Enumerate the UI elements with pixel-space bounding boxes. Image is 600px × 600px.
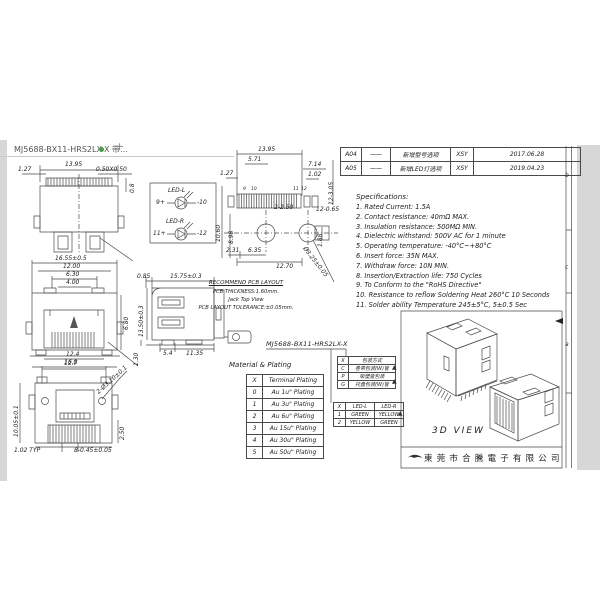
table-row: A05 —— 新增LED灯选项 XSY 2019.04.23 [341, 162, 581, 176]
led-right-cathode: -12 [197, 231, 207, 237]
pin-number: 11 [293, 188, 299, 193]
led-right-label: LED-R [166, 219, 184, 225]
table-row: X LED-L LED-R [334, 403, 404, 411]
cell: 吸塑盒包装 [349, 373, 396, 381]
cell: Au 6u" Plating [263, 411, 324, 423]
cell: 托盘包装(W)管 [349, 381, 396, 389]
cell: 5 [247, 447, 263, 459]
pcb-layout-note: RECOMMEND PCB LAYOUT PCB THICKNESS:1.60m… [194, 280, 298, 312]
rev-by: XSY [451, 162, 474, 176]
pcb-note-line: Jack Top View [194, 296, 298, 304]
cell: 2 [247, 411, 263, 423]
cell: Au 15u" Plating [263, 423, 324, 435]
dim-label: 2-2.50 [274, 205, 293, 211]
dim-label: 7.14 [308, 162, 321, 168]
dim-label: 16.55±0.5 [55, 256, 87, 262]
table-row: G托盘包装(W)管 [338, 381, 396, 389]
table-row: C卷带包装(W)管 [338, 365, 396, 373]
cell: Au 30u" Plating [263, 435, 324, 447]
pin-number: 10 [251, 188, 257, 193]
cell: X [338, 357, 349, 365]
rev-mark: —— [362, 162, 391, 176]
col-header: X [247, 375, 263, 387]
cell: 0 [247, 387, 263, 399]
zone-letter: a [565, 341, 569, 348]
material-plating-table: X Terminal Plating 0Au 1u" Plating 1Au 3… [246, 374, 324, 459]
dim-label: 8-0.45±0.05 [74, 448, 112, 454]
led-left-anode: 9+ [156, 200, 165, 206]
dim-label: 11.35 [186, 351, 203, 357]
cell: 包装方式 [349, 357, 396, 365]
table-row: 1Au 3u" Plating [247, 399, 324, 411]
dim-label: 1.27 [220, 171, 233, 177]
dim-label: 12.70 [276, 264, 293, 270]
cell: 3 [247, 423, 263, 435]
dim-label: 1.30 [134, 353, 140, 366]
rev-desc: 新增LED灯选项 [391, 162, 451, 176]
dim-label: 10.05±0.1 [14, 405, 20, 437]
col-header: LED-L [346, 403, 375, 411]
dim-label: 12.4 [66, 352, 79, 358]
spec-item: 10. Resistance to reflow Soldering Heat … [356, 291, 550, 301]
cell: Au 50u" Plating [263, 447, 324, 459]
spec-item: 9. To Conform to the "RoHS Directive" [356, 281, 550, 291]
rev-id: A05 [341, 162, 362, 176]
table-row: X Terminal Plating [247, 375, 324, 387]
dim-label: 13.95 [65, 162, 82, 168]
cell: 1 [247, 399, 263, 411]
cell: GREEN [346, 411, 375, 419]
threed-view-label: 3D VIEW [432, 426, 485, 436]
revision-table: A04 —— 新增型号选项 XSY 2017.06.28 A05 —— 新增LE… [340, 147, 581, 176]
revision-marker-icon: ▲ [392, 379, 397, 385]
spec-item: 6. Insert force: 35N MAX. [356, 252, 550, 262]
rev-desc: 新增型号选项 [391, 148, 451, 162]
spec-item: 8. Insertion/Extraction life: 750 Cycles [356, 272, 550, 282]
dim-label: 12.7 [64, 361, 77, 367]
packing-table: X包装方式 C卷带包装(W)管 P吸塑盒包装 G托盘包装(W)管 [337, 356, 396, 389]
dim-label: 6.35 [248, 248, 261, 254]
cell: 2 [334, 419, 346, 427]
table-row: 2Au 6u" Plating [247, 411, 324, 423]
spec-item: 7. Withdraw force: 10N MIN. [356, 262, 550, 272]
pin-number: 9 [243, 188, 246, 193]
revision-marker-icon: ▲ [392, 365, 397, 371]
col-header: X [334, 403, 346, 411]
zone-letter: b [565, 172, 569, 179]
spec-item: 1. Rated Current: 1.5A [356, 203, 550, 213]
table-row: 3Au 15u" Plating [247, 423, 324, 435]
table-row: 4Au 30u" Plating [247, 435, 324, 447]
pcb-note-line: PCB LAYOUT TOLERANCE:±0.05mm. [194, 304, 298, 312]
pcb-note-line: PCB THICKNESS:1.60mm. [194, 288, 298, 296]
dim-label: 0.8 [130, 183, 136, 193]
dim-label: 5.4 [163, 351, 173, 357]
dim-label: 12.00 [63, 264, 80, 270]
dim-label: 10.60 [216, 225, 222, 242]
cell: G [338, 381, 349, 389]
spec-item: 4. Dielectric withstand: 500V AC for 1 m… [356, 232, 550, 242]
led-color-table: X LED-L LED-R 1GREENYELLOW 2YELLOWGREEN [333, 402, 404, 427]
dim-label: 15.75±0.3 [170, 274, 202, 280]
spec-item: 2. Contact resistance: 40mΩ MAX. [356, 213, 550, 223]
table-row: 2YELLOWGREEN [334, 419, 404, 427]
cell: YELLOW [346, 419, 375, 427]
table-row: X包装方式 [338, 357, 396, 365]
table-row: P吸塑盒包装 [338, 373, 396, 381]
table-row: 5Au 50u" Plating [247, 447, 324, 459]
cell: Au 1u" Plating [263, 387, 324, 399]
company-logo-icon [406, 455, 423, 459]
table-row: 1GREENYELLOW [334, 411, 404, 419]
dim-label: 12-3.05 [329, 182, 335, 205]
cell: 4 [247, 435, 263, 447]
col-header: Terminal Plating [263, 375, 324, 387]
dim-label: 13.95 [258, 147, 275, 153]
dim-label: 1.88 [318, 234, 324, 247]
led-left-label: LED-L [168, 188, 185, 194]
dim-label: 1.02 TYP [14, 448, 40, 454]
rev-by: XSY [451, 148, 474, 162]
dim-label: 1.27 [18, 167, 31, 173]
dim-label: 12-0.65 [316, 207, 339, 213]
table-row: A04 —— 新增型号选项 XSY 2017.06.28 [341, 148, 581, 162]
cell: 1 [334, 411, 346, 419]
spec-item: 11. Solder ability Temperature 245±5°C, … [356, 301, 550, 311]
specifications: Specifications: 1. Rated Current: 1.5A 2… [356, 192, 550, 311]
cell: GREEN [375, 419, 404, 427]
revision-marker-icon: ▲ [398, 411, 403, 417]
dim-label: 13.50±0.3 [139, 305, 145, 337]
spec-item: 5. Operating temperature: -40°C~+80°C [356, 242, 550, 252]
dim-label: 2.50 [120, 427, 126, 440]
cell: C [338, 365, 349, 373]
dim-label: 0.50X0.50 [96, 167, 127, 173]
dim-label: 4.00 [66, 280, 79, 286]
dim-label: 6.30 [66, 272, 79, 278]
led-right-anode: 11+ [153, 231, 166, 237]
dim-label: 6.80 [124, 317, 130, 330]
cell: P [338, 373, 349, 381]
pcb-note-title: RECOMMEND PCB LAYOUT [194, 280, 298, 286]
spec-item: 3. Insulation resistance: 500MΩ MIN. [356, 223, 550, 233]
specs-title: Specifications: [356, 192, 550, 201]
led-left-cathode: -10 [197, 200, 207, 206]
rev-mark: —— [362, 148, 391, 162]
dim-label: 1.02 [308, 172, 321, 178]
zone-letter: c [565, 264, 568, 271]
dim-label: 5.71 [248, 157, 261, 163]
material-table-title: Material & Plating [229, 361, 291, 369]
page: { "tab": {"title": "MJ5688-BX11-HRS2LX-X… [0, 0, 600, 600]
part-number: MJ5688-BX11-HRS2LX-X [266, 340, 348, 348]
table-row: 0Au 1u" Plating [247, 387, 324, 399]
cell: 卷带包装(W)管 [349, 365, 396, 373]
company-name: 東莞市合騰電子有限公司 [424, 452, 564, 464]
dim-label: 0.85 [137, 274, 150, 280]
dim-label: 8.98 [229, 231, 235, 244]
cell: Au 3u" Plating [263, 399, 324, 411]
pin-number: 12 [301, 188, 307, 193]
rev-id: A04 [341, 148, 362, 162]
dim-label: 2.31 [226, 248, 239, 254]
rev-date: 2017.06.28 [474, 148, 581, 162]
